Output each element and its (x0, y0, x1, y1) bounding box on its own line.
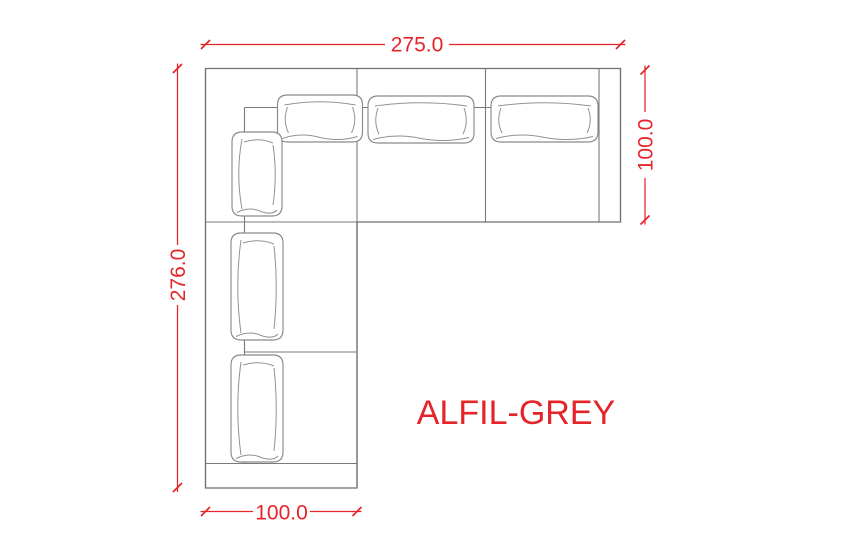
dimension-top-label: 275.0 (391, 34, 444, 57)
dimension-left: 276.0 (167, 64, 190, 493)
side-cushion-3 (231, 355, 283, 462)
dimension-left-label: 276.0 (167, 249, 190, 302)
side-cushion-1 (232, 132, 282, 216)
dimension-bottom: 100.0 (201, 502, 362, 525)
dimension-top: 275.0 (201, 34, 626, 57)
product-label: ALFIL-GREY (417, 394, 615, 432)
sofa-dimension-drawing: 275.0 100.0 276.0 100.0 ALFIL-GREY (0, 0, 850, 545)
drawing-canvas: 275.0 100.0 276.0 100.0 ALFIL-GREY (0, 0, 850, 545)
dimension-bottom-label: 100.0 (255, 502, 308, 525)
dimension-right-label: 100.0 (635, 119, 658, 172)
side-cushion-2 (231, 233, 283, 340)
dimension-right: 100.0 (635, 66, 658, 225)
